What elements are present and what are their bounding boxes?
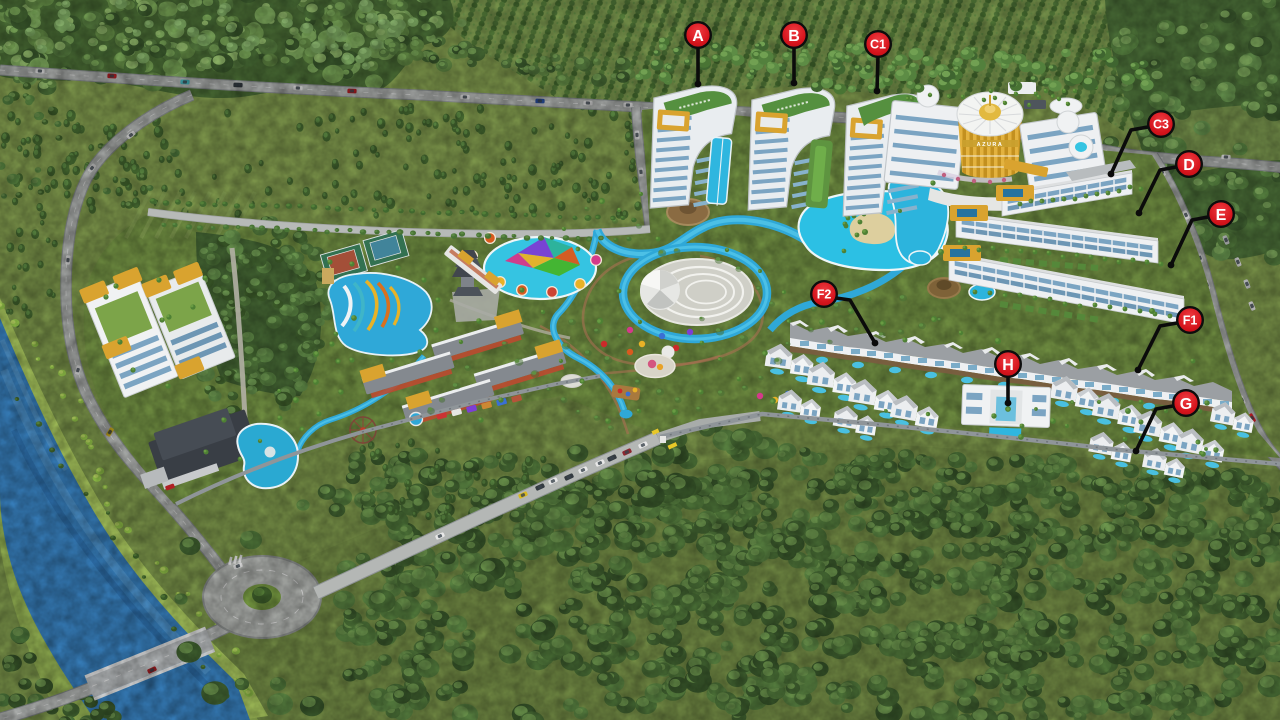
svg-text:AZURA: AZURA bbox=[977, 142, 1004, 148]
